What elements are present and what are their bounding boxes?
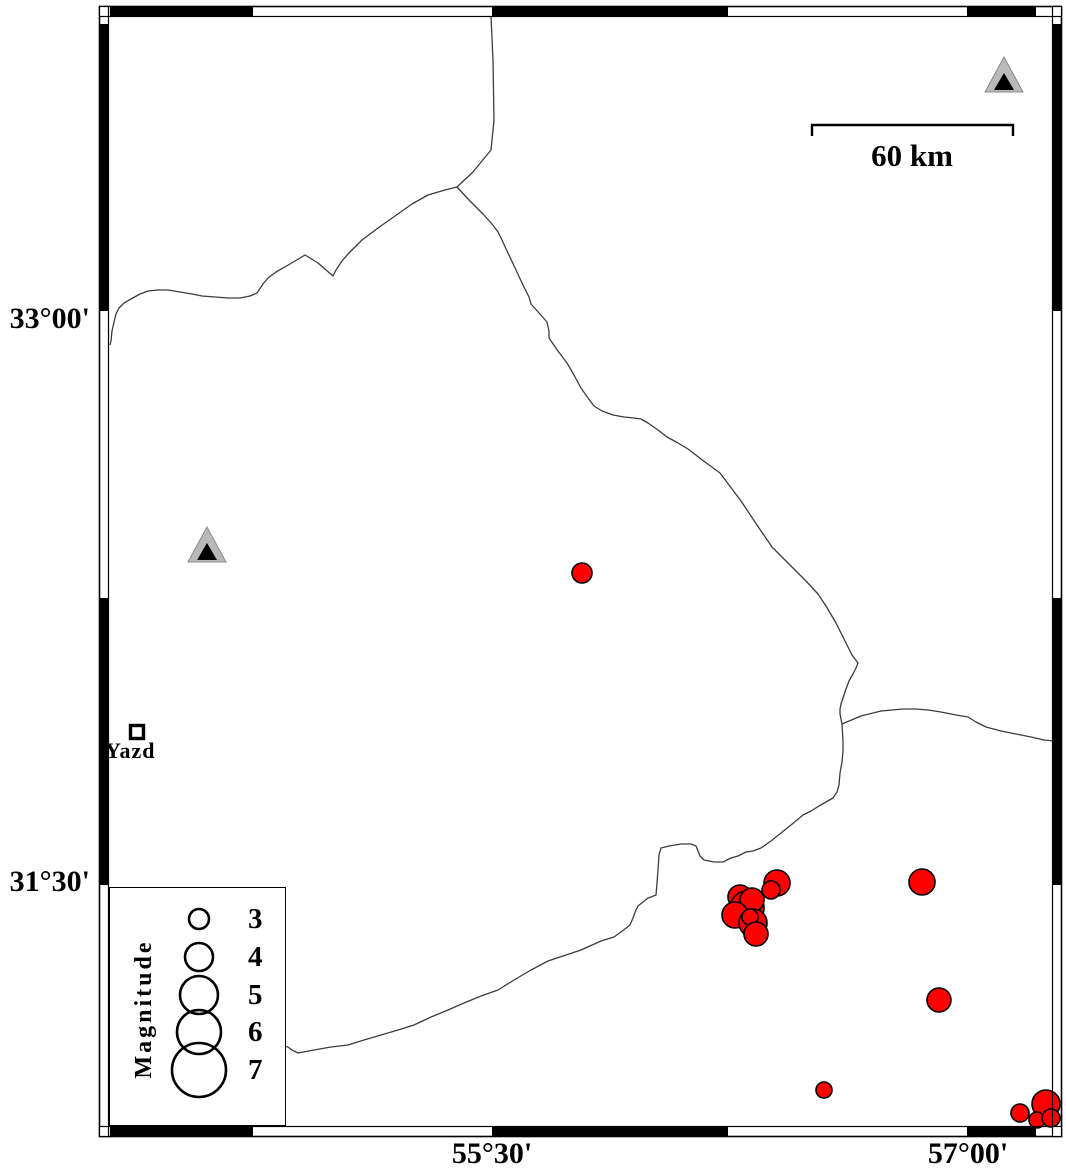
lat-label-33-00: 33°00': [0, 302, 90, 336]
legend-circle-m4: [185, 943, 213, 971]
boundary-line: [110, 187, 457, 345]
boundary-line: [457, 187, 858, 724]
legend-circle-m5: [180, 976, 218, 1014]
earthquake-marker: [909, 869, 935, 895]
legend-label-m6: 6: [248, 1015, 288, 1049]
magnitude-legend: Magnitude 34567: [109, 887, 286, 1126]
station-marker: [188, 527, 226, 562]
legend-circle-m7: [172, 1043, 226, 1097]
earthquake-marker: [572, 563, 592, 583]
earthquake-marker: [1042, 1109, 1060, 1127]
legend-label-m5: 5: [248, 978, 288, 1012]
scale-bar-label: 60 km: [832, 138, 992, 174]
earthquake-marker: [927, 988, 951, 1012]
earthquake-marker: [762, 881, 780, 899]
lat-label-31-30: 31°30': [0, 865, 90, 899]
boundary-line: [457, 16, 494, 187]
earthquake-marker: [1011, 1104, 1029, 1122]
city-label: Yazd: [105, 738, 155, 764]
city-marker: [131, 726, 144, 739]
boundary-line: [842, 709, 1054, 741]
lon-label-55-30: 55°30': [412, 1137, 572, 1171]
legend-label-m7: 7: [248, 1053, 288, 1087]
seismicity-map: 33°00' 31°30' 55°30' 57°00' 60 km Yazd M…: [0, 0, 1066, 1173]
legend-circle-m3: [189, 909, 209, 929]
earthquake-marker: [744, 922, 768, 946]
lon-label-57-00: 57°00': [888, 1137, 1048, 1171]
legend-label-m3: 3: [248, 902, 288, 936]
legend-title: Magnitude: [131, 897, 161, 1121]
station-marker: [985, 57, 1023, 92]
legend-label-m4: 4: [248, 940, 288, 974]
earthquake-marker: [816, 1082, 832, 1098]
scale-bar: [812, 125, 1013, 136]
boundary-line: [284, 724, 843, 1053]
